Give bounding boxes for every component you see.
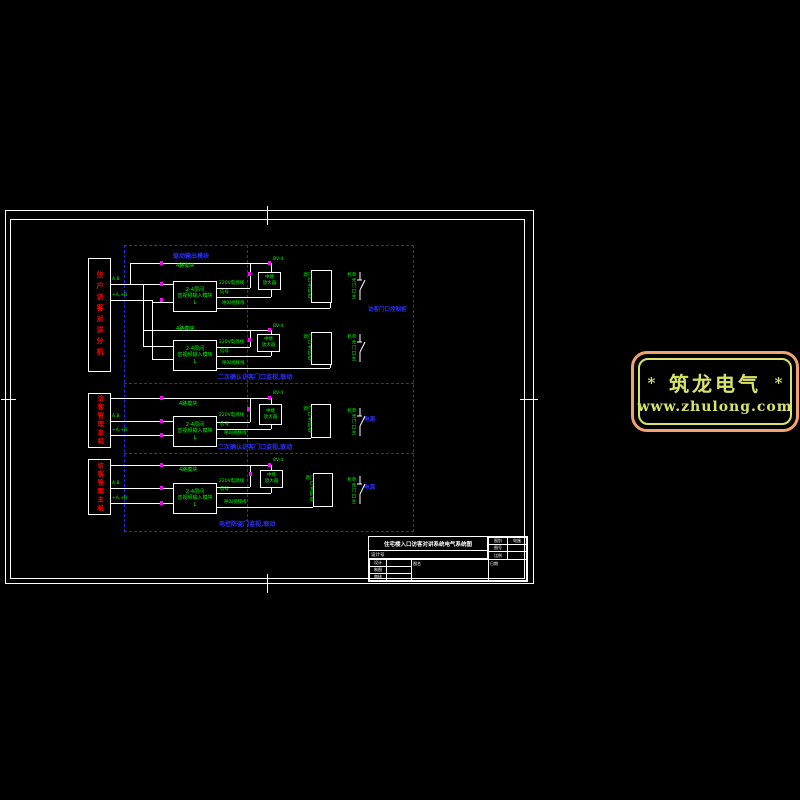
power-wire-label: 220V电源线 [219, 341, 244, 346]
source-device-label: 访客管理主机 [96, 462, 103, 513]
junction-marker [268, 396, 271, 400]
wire [152, 302, 173, 303]
wire [143, 346, 173, 347]
centering-mark-top [267, 206, 268, 225]
junction-marker [160, 433, 163, 437]
date-cell: 日期 [488, 559, 527, 581]
wire [271, 488, 272, 493]
repeater-box: 中继放大器 [260, 470, 283, 488]
cable-type-label: BV-4 [273, 459, 283, 464]
cable-type-label: BV-4 [273, 392, 283, 397]
zhulong-brand-text: 筑龙电气 [669, 368, 761, 397]
signal-wire-label: 信号 [220, 350, 229, 355]
star-icon: * [648, 374, 656, 392]
power-supply-box [313, 473, 333, 507]
cad-canvas: 驱动输出模块二次确认访客门口监视,联动二次确认访客门口监视,联动电控防盗门监视,… [0, 0, 800, 800]
star-icon: * [775, 374, 783, 392]
wire [111, 465, 271, 466]
wire [217, 493, 271, 494]
wire [217, 356, 271, 357]
module-count-label: 4路模块 [179, 468, 197, 474]
zhulong-logo-title-row: * 筑龙电气 * [648, 368, 783, 397]
junction-marker [248, 272, 251, 276]
drawing-title: 住宅楼入口访客对讲系统电气系统图 [369, 537, 488, 551]
wire [111, 421, 173, 422]
junction-marker [160, 396, 163, 400]
power-supply-label: 门口主机电源 [302, 272, 311, 302]
junction-marker [160, 486, 163, 490]
power-wire-label: 220V电源线 [219, 480, 244, 485]
door-station-label: 单元门口主机 [346, 477, 355, 505]
wire [143, 284, 144, 346]
box-label-line: L [194, 359, 197, 365]
checker-label-cell: 审核 [369, 573, 387, 581]
junction-marker [249, 472, 252, 476]
signal-wire-label: 信号 [220, 291, 229, 296]
wire [111, 284, 173, 285]
title-block: 住宅楼入口访客对讲系统电气系统图 图别 电施 图号 设计号 比例 设计 制图 审… [368, 536, 528, 582]
centering-mark-left [1, 399, 16, 400]
power-wire-label: 220V电源线 [219, 414, 244, 419]
box-label-line: 放大器 [263, 281, 277, 287]
box-label-line: 放大器 [262, 343, 276, 349]
bus-wire-label: +A,+B [112, 294, 127, 299]
wire [217, 288, 250, 289]
junction-marker [160, 463, 163, 467]
junction-marker [247, 407, 250, 411]
wire [111, 300, 152, 301]
section-label: 电控防盗门监视,联动 [219, 519, 275, 528]
wire [152, 359, 173, 360]
bus-wire-label: A,B [112, 415, 120, 420]
wire [217, 507, 313, 508]
junction-marker [160, 298, 163, 302]
box-label-line: L [194, 502, 197, 508]
power-supply-label: 门口主机电源 [304, 475, 313, 503]
section-label: 二次确认访客门口监视,联动 [218, 372, 292, 381]
cable-type-label: BV-4 [273, 258, 283, 263]
power-wire-label: 220V电源线 [219, 282, 244, 287]
source-device-block: 访客管理主机 [88, 459, 111, 515]
repeater-box: 中继放大器 [257, 334, 280, 352]
wire [217, 438, 311, 439]
io-module-box: 2-4层间音视频输入模块L [173, 281, 217, 312]
centering-mark-bottom [267, 574, 268, 593]
repeater-box: 中继放大器 [258, 272, 281, 290]
junction-marker [268, 261, 271, 265]
wire [271, 290, 272, 297]
junction-marker [268, 463, 271, 467]
cable-type-label: BV-4 [273, 325, 283, 330]
video-wire-label: 呼叫视频线 [224, 501, 247, 506]
junction-marker [160, 282, 163, 286]
wire [271, 352, 272, 356]
bus-wire-label: A,B [112, 278, 120, 283]
video-wire-label: 呼叫视频线 [222, 362, 245, 367]
wire [130, 263, 131, 284]
door-station-label: 单元门口主机 [346, 272, 355, 300]
door-station-label: 单元门口主机 [346, 334, 355, 362]
io-module-box: 2-4层间音视频输入模块L [173, 416, 217, 447]
centering-mark-right [520, 399, 538, 400]
wire [111, 435, 173, 436]
junction-marker [160, 419, 163, 423]
sheet-name-cell: 图名 [411, 559, 489, 581]
module-dashed-divider [124, 453, 414, 454]
module-count-label: 4路模块 [176, 327, 194, 333]
module-dashed-divider [124, 383, 414, 384]
bus-wire-label: A,B [112, 482, 120, 487]
box-label-line: 放大器 [264, 415, 278, 421]
video-wire-label: 呼叫视频线 [224, 432, 247, 437]
junction-marker [248, 338, 251, 342]
wire [217, 429, 271, 430]
box-label-line: 放大器 [265, 479, 279, 485]
zhulong-logo: * 筑龙电气 * www.zhulong.com [631, 351, 799, 432]
project-number-cell: 设计号 [369, 551, 488, 559]
box-label-line: L [194, 300, 197, 306]
module-count-label: 4路模块 [176, 264, 194, 270]
bus-wire-label: +A,+B [112, 429, 127, 434]
source-device-label: 住户访客对讲分机 [96, 271, 103, 359]
power-supply-box [311, 270, 332, 303]
section-label: 二次确认访客门口监视,联动 [218, 442, 292, 451]
module-count-label: 4路模块 [179, 402, 197, 408]
box-label-line: L [194, 435, 197, 441]
wire [330, 365, 331, 368]
checker-value-cell [386, 573, 412, 581]
wire [330, 303, 331, 308]
power-supply-box [311, 332, 332, 365]
wire [271, 263, 272, 272]
source-device-block: 访客管理主机 [88, 393, 111, 448]
power-supply-label: 门口主机电源 [302, 406, 311, 436]
wire [217, 347, 250, 348]
power-supply-box [311, 404, 331, 438]
wire [111, 398, 271, 399]
bus-wire-label: +A,+B [112, 497, 127, 502]
wire [250, 398, 251, 422]
zhulong-url-text: www.zhulong.com [637, 399, 792, 415]
source-device-label: 访客管理主机 [96, 395, 103, 446]
wire [217, 368, 330, 369]
right-region-label: 访客门口控制柜 [368, 305, 407, 313]
junction-marker [160, 501, 163, 505]
source-device-block: 住户访客对讲分机 [88, 258, 111, 372]
junction-marker [160, 261, 163, 265]
signal-wire-label: 信号 [220, 488, 229, 493]
module-title-label: 驱动输出模块 [173, 251, 209, 260]
wire [217, 308, 330, 309]
wire [250, 465, 251, 487]
video-wire-label: 呼叫视频线 [222, 302, 245, 307]
zhulong-logo-inner: * 筑龙电气 * www.zhulong.com [638, 358, 792, 425]
power-supply-label: 门口主机电源 [302, 334, 311, 364]
io-module-box: 2-4层间音视频输入模块L [173, 340, 217, 371]
door-station-label: 单元门口主机 [346, 408, 355, 436]
wire [111, 488, 173, 489]
io-module-box: 2-4层间音视频输入模块L [173, 483, 217, 514]
signal-wire-label: 信号 [220, 423, 229, 428]
wire [271, 425, 272, 429]
wire [217, 297, 271, 298]
junction-marker [268, 328, 271, 332]
repeater-box: 中继放大器 [259, 404, 282, 425]
wire [111, 503, 173, 504]
wire [143, 330, 271, 331]
